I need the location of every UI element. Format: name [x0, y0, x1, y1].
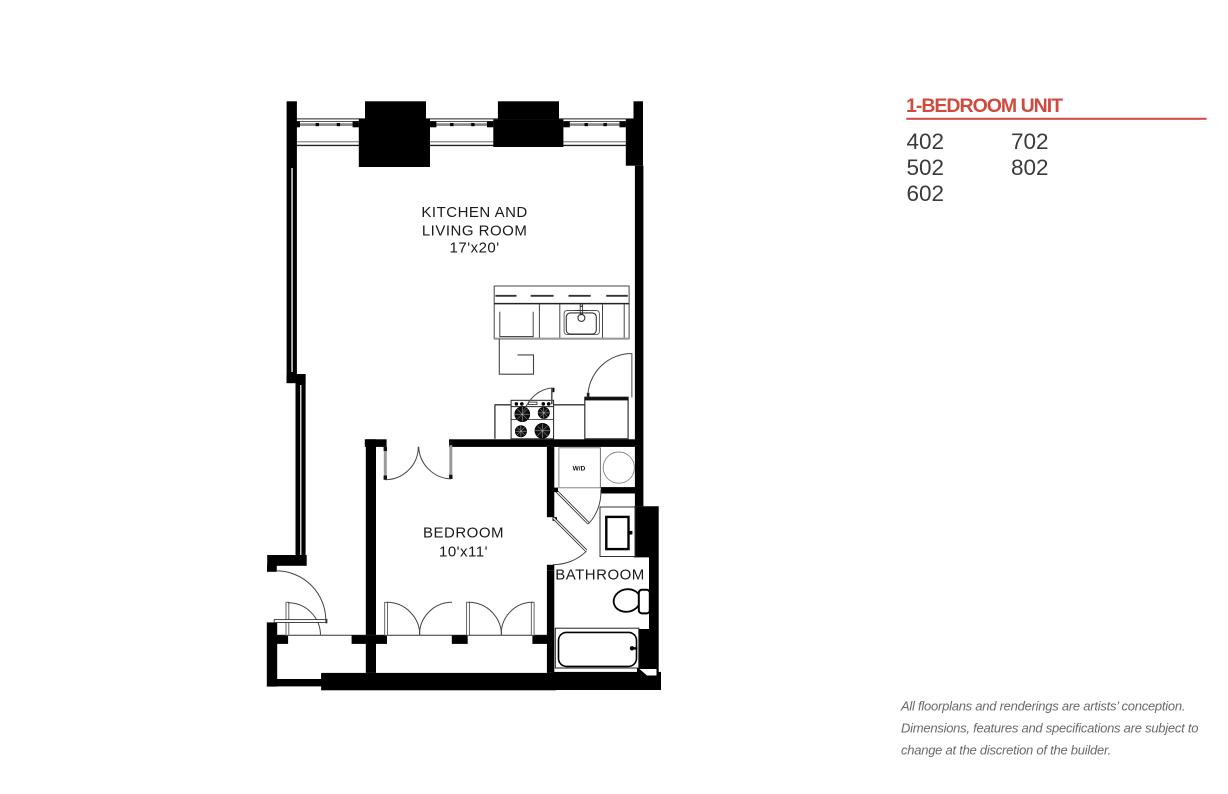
svg-text:All floorplans and renderings: All floorplans and renderings are artist…	[900, 699, 1185, 714]
svg-text:702: 702	[1011, 129, 1049, 154]
svg-text:change at the discretion of th: change at the discretion of the builder.	[901, 743, 1111, 758]
svg-text:BEDROOM: BEDROOM	[423, 525, 504, 542]
svg-text:1-BEDROOM UNIT: 1-BEDROOM UNIT	[906, 95, 1063, 117]
svg-text:502: 502	[907, 155, 945, 180]
svg-text:BATHROOM: BATHROOM	[555, 566, 645, 583]
svg-text:LIVING ROOM: LIVING ROOM	[422, 222, 528, 239]
svg-text:W/D: W/D	[573, 465, 586, 472]
svg-text:402: 402	[907, 129, 945, 154]
svg-text:602: 602	[907, 181, 945, 206]
svg-text:17'x20': 17'x20'	[450, 239, 500, 256]
svg-text:Dimensions, features and speci: Dimensions, features and specifications …	[901, 721, 1198, 736]
svg-text:802: 802	[1011, 155, 1049, 180]
svg-text:KITCHEN AND: KITCHEN AND	[421, 204, 527, 221]
svg-text:10'x11': 10'x11'	[439, 544, 488, 561]
